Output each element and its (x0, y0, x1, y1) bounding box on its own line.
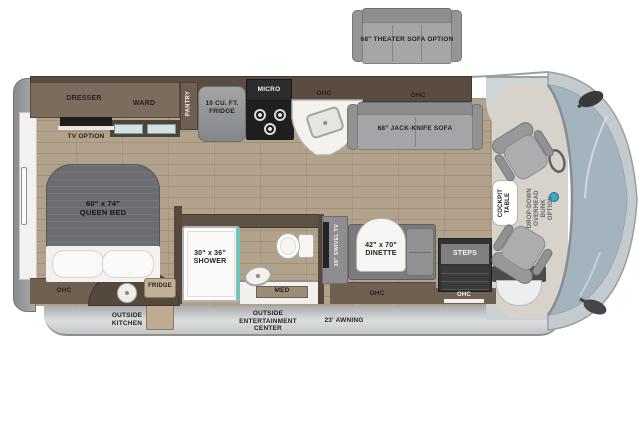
label-pantry: PANTRY (185, 77, 192, 131)
tv-bar (60, 117, 112, 126)
label-ohc-bedroom: OHC (46, 287, 82, 295)
cooktop (246, 101, 294, 140)
label-ward: WARD (116, 100, 172, 108)
burner-2 (274, 109, 286, 121)
table-post-icon (125, 291, 129, 295)
burner-3 (264, 123, 276, 135)
pillow-left (52, 250, 104, 278)
dinette-bench (406, 228, 434, 276)
label-overhead-bunk: DROP-DOWN OVERHEAD BUNK OPTION (527, 182, 555, 234)
label-outside-kitchen: OUTSIDE KITCHEN (97, 312, 157, 327)
label-steps: STEPS (441, 250, 489, 258)
shower-glass (236, 228, 240, 300)
windshield-streak-2 (580, 252, 600, 296)
drain-icon (322, 120, 327, 125)
label-outside-entertainment: OUTSIDE ENTERTAINMENT CENTER (231, 310, 305, 333)
label-queen-bed: 60" x 74" QUEEN BED (53, 200, 153, 218)
label-ohc-sofa: OHC (400, 92, 436, 100)
entry-white-strip (444, 299, 484, 303)
label-ohc-kitchen: OHC (306, 90, 342, 98)
ward-door-left (114, 124, 143, 134)
steps-treads (441, 266, 489, 290)
burner-1 (254, 109, 266, 121)
label-micro: MICRO (246, 86, 292, 94)
sink-drain-icon (256, 274, 261, 279)
toilet-tank (298, 234, 314, 258)
label-ohc-dinette: OHC (359, 290, 395, 298)
toilet-bowl (276, 233, 300, 259)
tv-shelf (58, 126, 114, 130)
rear-wall-handle (21, 167, 27, 225)
mirror-bottom-stem (580, 299, 588, 303)
label-awning: 23' AWNING (312, 317, 376, 325)
label-ohc-entry: OHC (446, 292, 482, 299)
swivel-tv-bar (323, 222, 329, 268)
label-ohc-outside-kitchen: OHC (109, 273, 145, 280)
label-tv-option: TV OPTION (56, 133, 116, 141)
label-dinette: 42" x 70" DINETTE (356, 242, 406, 259)
label-shower: 30" x 36" SHOWER (184, 250, 236, 267)
round-table (117, 283, 137, 303)
label-theater-sofa: 68" THEATER SOFA OPTION (352, 36, 462, 44)
ward-door-right (147, 124, 176, 134)
windshield-streak-1 (585, 116, 607, 198)
label-cockpit-table: COCKPIT TABLE (498, 180, 512, 226)
mirror-bottom-icon (581, 296, 608, 317)
label-med: MED (256, 287, 308, 295)
mirror-top-stem (578, 102, 586, 107)
floorplan: 68" THEATER SOFA OPTION DRESSER WARD PAN… (0, 0, 640, 436)
label-kitchen-fridge: 10 CU. FT. FRIDGE (198, 100, 246, 115)
label-dresser: DRESSER (52, 95, 116, 103)
label-swivel-tv: 39" SWIVEL TV (334, 213, 340, 277)
label-jack-knife-sofa: 68" JACK-KNIFE SOFA (357, 125, 473, 133)
mirror-top-icon (576, 88, 605, 111)
label-outside-fridge: FRIDGE (144, 283, 176, 290)
